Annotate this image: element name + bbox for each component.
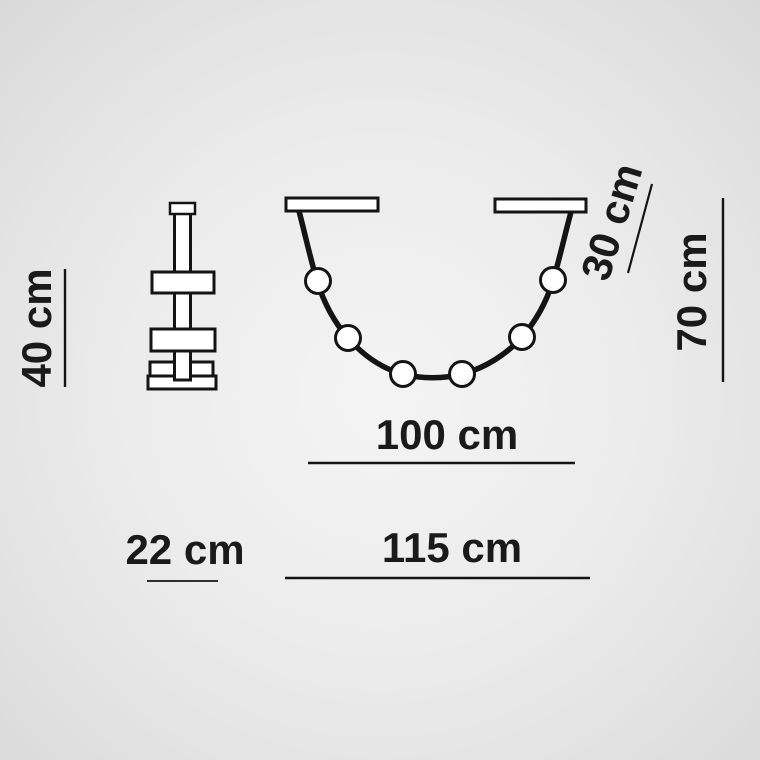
dimension-drawing — [0, 0, 760, 760]
bulb-sphere-5 — [510, 325, 535, 350]
bulb-sphere-6 — [541, 268, 566, 293]
side-view-middle-disc — [151, 329, 215, 351]
label-overall-width: 115 cm — [382, 527, 522, 569]
side-view-upper-disc — [152, 272, 214, 293]
side-view-top-cap — [170, 203, 195, 214]
bulb-sphere-3 — [391, 362, 416, 387]
side-view-fixture — [148, 203, 216, 389]
front-view-fixture — [286, 198, 586, 387]
label-overall-height: 70 cm — [671, 232, 713, 351]
label-side-view-width: 22 cm — [125, 529, 244, 571]
label-side-view-height: 40 cm — [16, 268, 58, 387]
ceiling-mount-left — [286, 198, 378, 211]
label-mount-span: 100 cm — [376, 414, 518, 456]
bulb-sphere-4 — [450, 362, 475, 387]
bulb-sphere-2 — [336, 326, 361, 351]
bulb-spheres — [306, 268, 566, 387]
bulb-sphere-1 — [306, 269, 331, 294]
diagram-canvas: 40 cm 22 cm 100 cm 115 cm 30 cm 70 cm — [0, 0, 760, 760]
ceiling-mount-right — [495, 199, 586, 212]
side-view-stem — [175, 212, 191, 380]
suspension-cable — [299, 211, 571, 378]
